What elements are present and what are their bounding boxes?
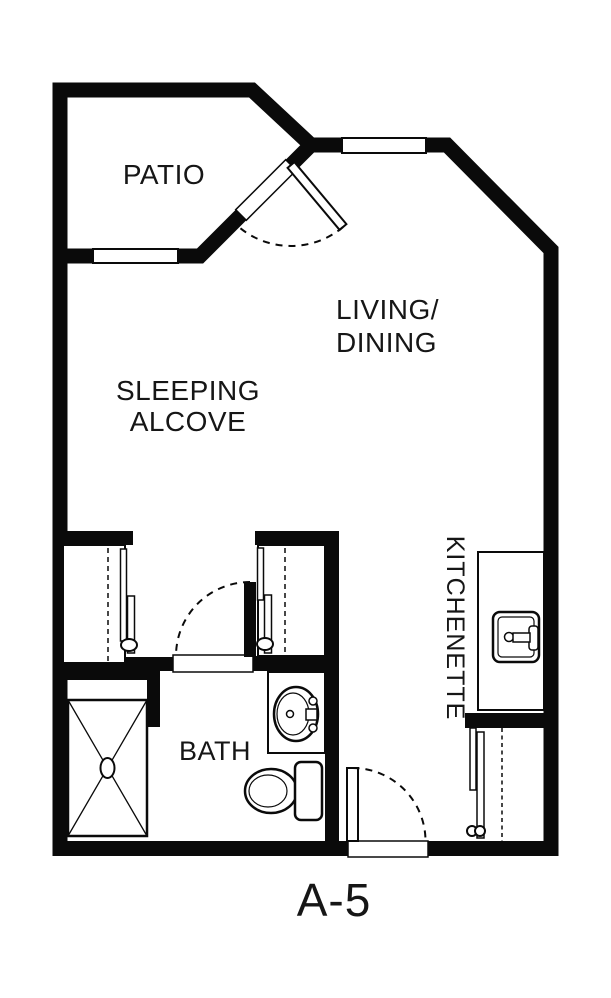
label-bath: BATH: [179, 736, 251, 766]
shower: [68, 700, 147, 836]
bath-sink-drain: [287, 711, 294, 718]
bath-door-threshold: [173, 655, 253, 672]
left-closet-bottom-wall: [53, 663, 160, 680]
patio-door: [234, 160, 347, 246]
left-closet-top-wall: [53, 531, 133, 545]
bath-faucet-knob-bottom: [309, 724, 317, 732]
patio-door-swing-arc: [234, 222, 343, 246]
left-closet: [63, 545, 137, 663]
bath-door-leaf: [244, 582, 256, 657]
bath-vanity: [268, 672, 325, 753]
shower-drain: [101, 758, 115, 778]
lower-closet-door-pull-2: [475, 826, 485, 836]
label-patio: PATIO: [123, 159, 205, 190]
right-closet-door-pull: [257, 638, 273, 650]
patio-window: [93, 249, 178, 263]
unit-number-label: A-5: [297, 874, 372, 926]
shower-side-wall-stub: [147, 680, 160, 727]
label-living-dining-line1: LIVING/: [336, 294, 439, 325]
label-sleeping-alcove-line2: ALCOVE: [130, 406, 247, 437]
kitchenette-lower-wall: [465, 713, 558, 728]
bath-wall-right-of-door: [253, 656, 339, 671]
label-sleeping-alcove-line1: SLEEPING: [116, 375, 260, 406]
bath-east-wall: [325, 531, 339, 856]
right-closet: [257, 545, 325, 656]
kitchenette: [478, 552, 544, 710]
entry-door-swing-arc: [353, 768, 426, 841]
bath-door-swing-arc: [176, 582, 250, 656]
left-closet-door-pull: [121, 639, 137, 651]
kitchen-faucet-spout: [513, 633, 530, 642]
floor-plan-canvas: PATIO LIVING/ DINING SLEEPING ALCOVE BAT…: [0, 0, 611, 998]
toilet: [245, 762, 322, 820]
entry-door-threshold: [348, 841, 428, 857]
patio-door-leaf: [288, 162, 347, 230]
entry-door: [347, 768, 428, 857]
label-kitchenette: KITCHENETTE: [441, 536, 469, 721]
toilet-tank: [295, 762, 322, 820]
living-window: [342, 138, 426, 153]
right-closet-slider-panel-1: [258, 548, 264, 600]
entry-door-leaf: [347, 768, 358, 841]
lower-right-closet: [467, 728, 502, 841]
bath-faucet-knob-top: [309, 697, 317, 705]
bath-faucet-spout: [306, 709, 317, 720]
kitchen-sink-drain: [505, 633, 514, 642]
bath-door: [173, 582, 256, 672]
label-living-dining-line2: DINING: [336, 327, 437, 358]
left-closet-outline: [63, 545, 125, 663]
lower-closet-slider-panel-1: [470, 728, 476, 790]
lower-closet-slider-panel-2: [477, 732, 484, 838]
left-closet-slider-panel-1: [121, 549, 127, 641]
floor-plan-page: PATIO LIVING/ DINING SLEEPING ALCOVE BAT…: [0, 0, 611, 998]
